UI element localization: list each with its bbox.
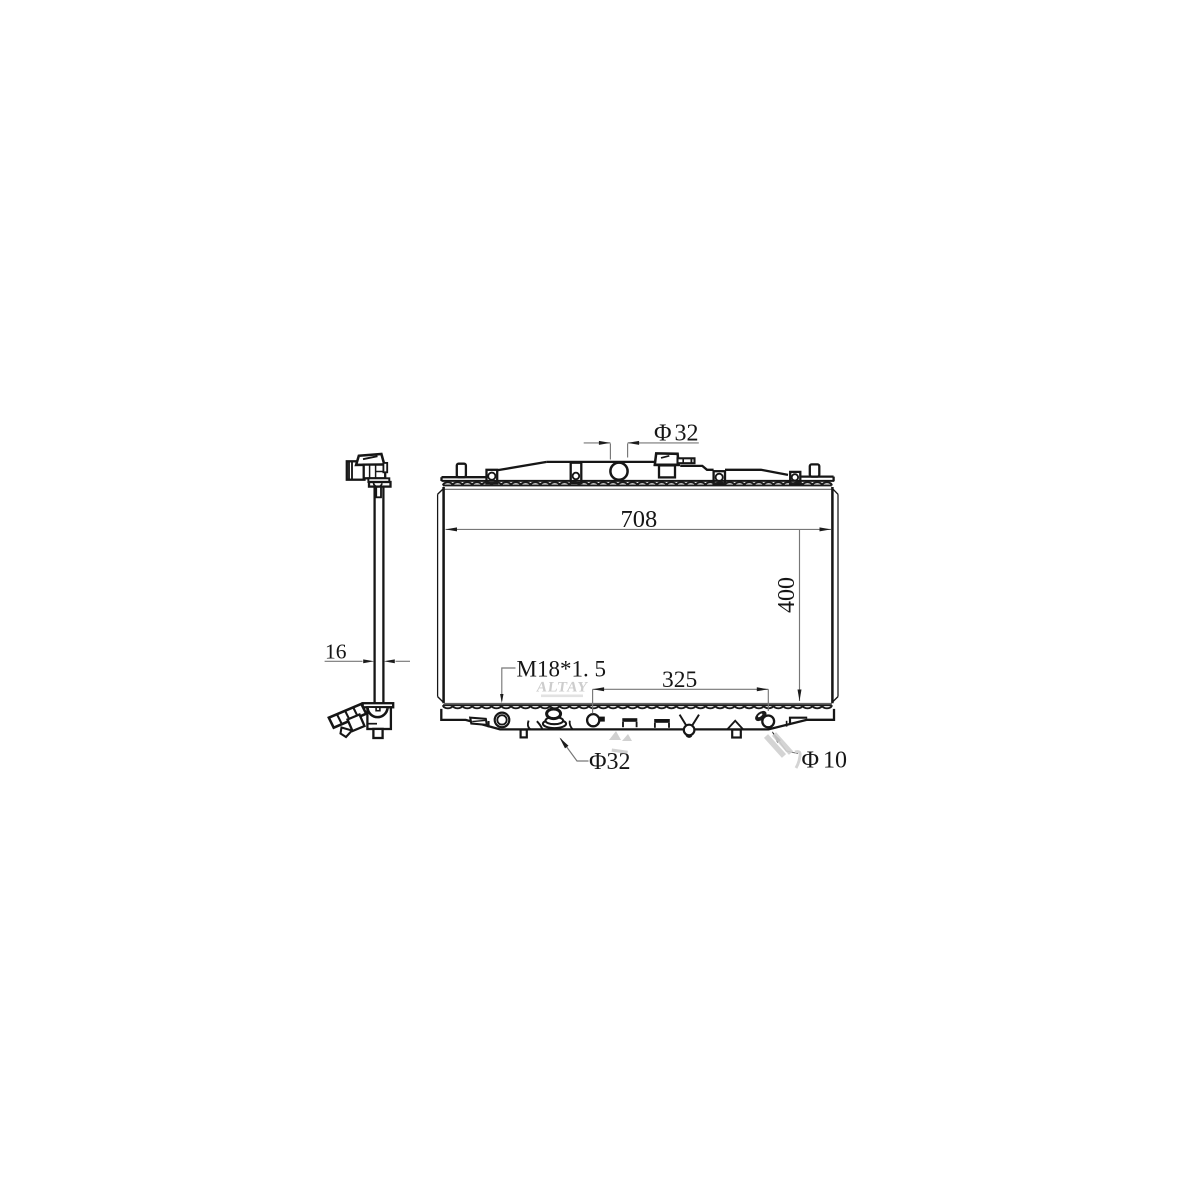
svg-text:708: 708: [621, 506, 658, 533]
svg-text:16: 16: [325, 640, 347, 664]
svg-text:325: 325: [662, 667, 697, 693]
svg-text:Φ32: Φ32: [654, 421, 699, 447]
svg-text:M18*1. 5: M18*1. 5: [517, 657, 606, 682]
svg-text:Φ10: Φ10: [802, 748, 848, 774]
svg-text:ALTAY: ALTAY: [535, 680, 589, 696]
svg-text:400: 400: [774, 577, 800, 613]
